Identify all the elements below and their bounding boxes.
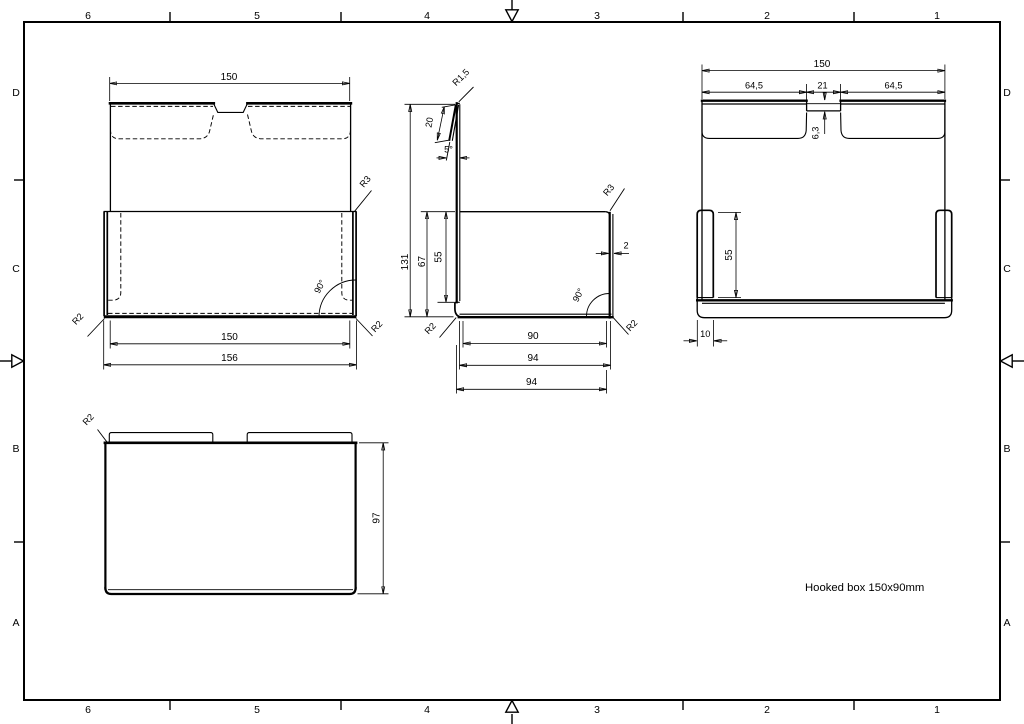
dimension-text: 64,5: [745, 80, 763, 90]
zone-label: D: [12, 87, 20, 99]
zone-label: B: [1003, 443, 1010, 455]
dimension-text: 20: [423, 116, 435, 128]
dimension-text: 67: [417, 256, 428, 268]
center-arrow: [1001, 355, 1013, 367]
top-view: R2 97: [81, 412, 389, 594]
zone-label: 3: [594, 10, 600, 22]
leader-line: [88, 319, 105, 337]
radius-text: R2: [423, 321, 438, 336]
dimension-text: 2: [623, 241, 628, 251]
front-view: 150 R3 90° R2 R2 150 156: [70, 72, 384, 370]
zone-label: 6: [85, 704, 91, 716]
radius-text: R3: [358, 174, 373, 189]
leader-line: [98, 430, 107, 442]
zone-label: C: [1003, 263, 1011, 275]
drawing-frame: 6 5 4 3 2 1 6 5 4 3 2 1 D C B A D C B A: [0, 0, 1024, 724]
extension-line: [435, 140, 449, 143]
zone-label: 1: [934, 704, 940, 716]
radius-text: R3: [601, 182, 616, 197]
zone-label: A: [12, 617, 19, 629]
dimension-text: 150: [221, 332, 238, 343]
radius-text: R2: [81, 412, 96, 427]
zone-label: 2: [764, 704, 770, 716]
zone-label: 1: [934, 10, 940, 22]
fold-outline: [702, 109, 807, 138]
radius-text: R2: [70, 311, 85, 326]
dimension-text: 94: [526, 377, 538, 388]
center-arrow: [506, 701, 518, 713]
dimension-text: 64,5: [885, 80, 903, 90]
dimension-text: 6,3: [811, 127, 821, 140]
border-rect: [24, 22, 1000, 700]
fold-outline: [841, 109, 945, 138]
dimension-text: 10: [700, 329, 710, 339]
zone-label: B: [12, 443, 19, 455]
hidden-line: [111, 108, 214, 139]
angle-text: 90°: [571, 286, 587, 303]
tab-outline: [109, 433, 213, 443]
hook-flap-edge: [449, 105, 456, 141]
dimension-text: 97: [372, 512, 383, 524]
leader-line: [440, 318, 457, 338]
angle-text: 5°: [444, 145, 453, 155]
zone-label: C: [12, 263, 20, 275]
tab-outline: [247, 433, 352, 443]
dimension-text: 150: [221, 72, 238, 83]
cad-drawing-page: 6 5 4 3 2 1 6 5 4 3 2 1 D C B A D C B A …: [0, 0, 1024, 724]
leader-line: [355, 191, 372, 212]
zone-label: 5: [254, 704, 260, 716]
outline-edge: [455, 302, 463, 317]
hidden-line: [342, 213, 354, 300]
flange-outline: [936, 210, 952, 297]
dimension-text: 55: [724, 249, 735, 261]
zone-label: A: [1003, 617, 1010, 629]
zone-label: 4: [424, 10, 430, 22]
dimension-text: 90: [527, 331, 539, 342]
angle-text: 90°: [312, 278, 328, 295]
dimension-line: [437, 107, 444, 141]
side-view: R1,5 20 5° 131 67 55 R3 2 90° R2 R2 90 9…: [400, 67, 639, 394]
dimension-text: 55: [434, 251, 445, 263]
dimension-text: 94: [527, 353, 539, 364]
hidden-line: [108, 213, 121, 300]
dimension-text: 131: [400, 253, 411, 270]
outline-edge: [105, 588, 355, 594]
zone-label: D: [1003, 87, 1011, 99]
dimension-text: 21: [817, 80, 827, 90]
flange-outline: [697, 210, 713, 297]
center-arrow: [506, 10, 518, 22]
radius-text: R1,5: [450, 67, 471, 88]
radius-text: R2: [369, 319, 384, 334]
leader-line: [459, 87, 474, 102]
zone-label: 3: [594, 704, 600, 716]
drawing-title: Hooked box 150x90mm: [805, 582, 924, 594]
notch-outline: [214, 104, 247, 112]
dimension-text: 150: [814, 59, 831, 70]
zone-label: 2: [764, 10, 770, 22]
zone-label: 5: [254, 10, 260, 22]
radius-text: R2: [624, 318, 639, 333]
zone-label: 4: [424, 704, 430, 716]
angle-arc: [587, 294, 610, 317]
dimension-text: 156: [221, 353, 238, 364]
zone-label: 6: [85, 10, 91, 22]
cad-drawing-canvas: 6 5 4 3 2 1 6 5 4 3 2 1 D C B A D C B A …: [0, 0, 1024, 724]
hidden-line: [248, 108, 351, 139]
back-view: 150 64,5 21 64,5 6,3 55 10: [684, 59, 952, 347]
center-arrow: [12, 355, 24, 367]
